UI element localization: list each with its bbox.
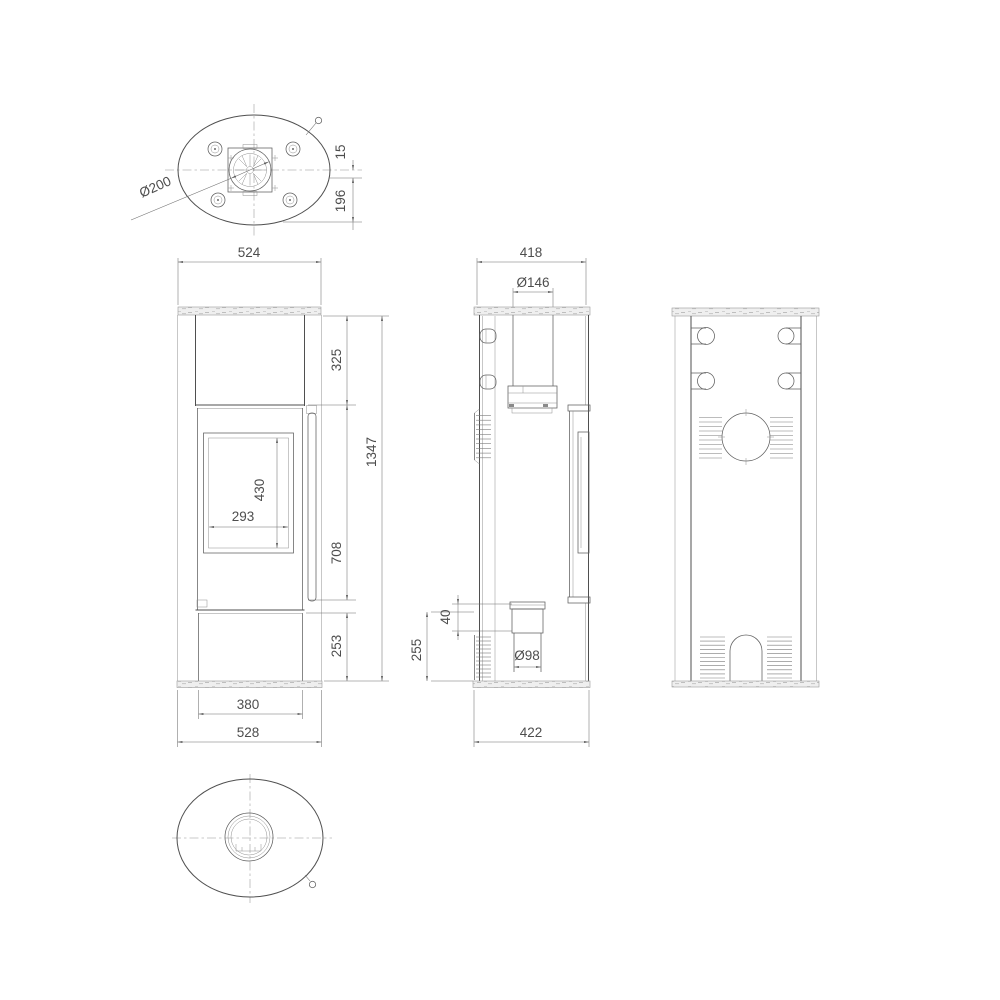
rear-view bbox=[672, 308, 819, 687]
damper-box bbox=[508, 386, 557, 413]
dim-flue-outlet-label: Ø146 bbox=[516, 275, 549, 290]
stove-dimension-drawing: Ø200 15 196 524 bbox=[0, 0, 1000, 1000]
door-glass-inner bbox=[209, 438, 289, 548]
top-plate-rear bbox=[672, 308, 819, 316]
dim-air-outlet-offset: 40 bbox=[438, 595, 512, 640]
dim-base-section-label: 253 bbox=[329, 635, 344, 658]
rear-vent-lower-right bbox=[767, 637, 792, 678]
front-height-dims: 325 708 253 1347 bbox=[306, 316, 389, 681]
front-view: 524 430 293 bbox=[177, 245, 389, 747]
dim-base-width-label: 528 bbox=[237, 725, 260, 740]
dim-glass: 430 293 bbox=[209, 438, 288, 548]
dim-flue-diameter-label: Ø200 bbox=[137, 173, 173, 200]
dim-base-depth-label: 422 bbox=[520, 725, 543, 740]
dim-center-to-rear-label: 196 bbox=[333, 190, 348, 213]
dim-top-plate-width: 524 bbox=[178, 245, 321, 305]
rear-arch-opening bbox=[730, 635, 762, 681]
dim-door-section-label: 708 bbox=[329, 542, 344, 565]
dim-plinth-width-label: 380 bbox=[237, 697, 260, 712]
damper-pin-callout bbox=[306, 117, 322, 135]
rear-bosses bbox=[691, 328, 801, 390]
dim-top-depth-label: 418 bbox=[520, 245, 543, 260]
door-handle bbox=[308, 413, 316, 601]
top-view-rear-dims: 15 196 bbox=[283, 144, 362, 230]
rear-vent-upper-right bbox=[770, 418, 793, 459]
base-plate-side bbox=[473, 681, 590, 688]
rear-vent-lower-left bbox=[700, 637, 725, 678]
top-plate-side bbox=[474, 307, 590, 315]
door-side-profile bbox=[568, 405, 590, 603]
door-glass-outer bbox=[204, 433, 294, 553]
door-front bbox=[197, 406, 317, 611]
top-plate-front bbox=[178, 307, 321, 315]
dim-rim-offset-label: 15 bbox=[333, 144, 348, 159]
top-view: Ø200 15 196 bbox=[131, 104, 362, 236]
bottom-pin-callout bbox=[305, 875, 316, 888]
rear-flue-opening bbox=[718, 409, 774, 465]
dim-glass-height-label: 430 bbox=[252, 479, 267, 502]
dim-upper-section-label: 325 bbox=[329, 349, 344, 372]
bottom-air-opening bbox=[225, 813, 273, 861]
rear-vent-upper-left bbox=[699, 418, 722, 459]
technical-drawing-page: Ø200 15 196 524 bbox=[0, 0, 1000, 1000]
bottom-view bbox=[172, 774, 332, 903]
dim-air-intake: Ø98 bbox=[514, 648, 541, 667]
dim-top-plate-width-label: 524 bbox=[238, 245, 261, 260]
dim-glass-width-label: 293 bbox=[232, 509, 255, 524]
dim-lower-section-label: 255 bbox=[409, 639, 424, 662]
dim-total-height-label: 1347 bbox=[364, 437, 379, 467]
side-view: 418 Ø146 bbox=[409, 245, 590, 747]
dim-base-depth: 422 bbox=[474, 690, 589, 747]
dim-air-intake-label: Ø98 bbox=[514, 648, 540, 663]
door-hinge bbox=[197, 600, 207, 607]
base-plate-rear bbox=[672, 681, 819, 687]
base-plate-front bbox=[177, 681, 322, 688]
front-bottom-dims: 380 528 bbox=[178, 690, 322, 747]
